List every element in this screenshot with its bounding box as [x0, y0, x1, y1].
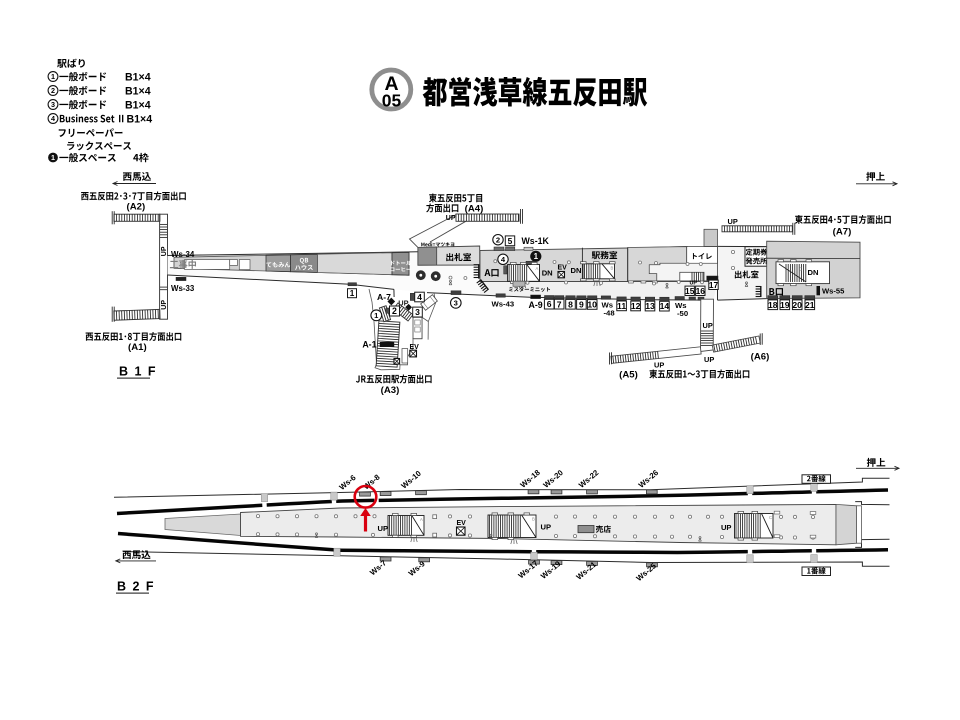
- svg-text:5: 5: [508, 236, 513, 246]
- svg-text:1: 1: [534, 252, 539, 261]
- svg-text:UP: UP: [721, 523, 732, 532]
- svg-text:1: 1: [51, 72, 55, 81]
- svg-text:B1×4: B1×4: [125, 71, 151, 83]
- svg-text:17: 17: [709, 280, 719, 290]
- svg-text:16: 16: [696, 286, 706, 296]
- svg-text:(A6): (A6): [751, 352, 770, 363]
- svg-text:UP: UP: [541, 523, 552, 532]
- svg-text:15: 15: [685, 286, 695, 296]
- svg-text:-48: -48: [604, 308, 616, 317]
- svg-text:(A5): (A5): [619, 370, 638, 381]
- svg-text:(A7): (A7): [833, 227, 852, 238]
- svg-text:05: 05: [382, 91, 402, 111]
- svg-text:19: 19: [780, 300, 790, 310]
- svg-text:3: 3: [415, 307, 420, 317]
- svg-text:10: 10: [587, 300, 597, 310]
- svg-text:A-9: A-9: [529, 300, 543, 310]
- svg-text:3: 3: [454, 299, 458, 308]
- svg-text:UP: UP: [703, 321, 713, 330]
- svg-text:2: 2: [392, 306, 397, 316]
- svg-text:1: 1: [350, 289, 355, 298]
- svg-text:UP: UP: [446, 215, 456, 222]
- svg-text:C: C: [769, 515, 772, 520]
- svg-text:2: 2: [51, 86, 55, 95]
- svg-text:-50: -50: [677, 309, 688, 318]
- svg-text:UP: UP: [161, 300, 168, 310]
- svg-text:EV: EV: [558, 265, 568, 272]
- svg-text:A-1: A-1: [362, 339, 376, 349]
- svg-text:B 2 F: B 2 F: [117, 580, 155, 594]
- svg-text:EV: EV: [457, 520, 467, 527]
- svg-text:UP: UP: [161, 246, 168, 256]
- svg-text:2: 2: [496, 235, 500, 244]
- svg-text:12: 12: [631, 301, 641, 311]
- svg-text:UP: UP: [654, 361, 664, 370]
- svg-text:21: 21: [805, 300, 815, 310]
- svg-text:(A4): (A4): [465, 204, 484, 215]
- svg-text:1: 1: [51, 153, 55, 162]
- svg-text:14: 14: [660, 301, 670, 311]
- svg-text:C: C: [799, 267, 802, 272]
- svg-text:A: A: [536, 266, 539, 271]
- svg-text:DN: DN: [808, 268, 819, 277]
- svg-text:Ws-33: Ws-33: [171, 284, 195, 293]
- svg-text:3: 3: [51, 100, 55, 109]
- svg-text:13: 13: [645, 301, 655, 311]
- svg-text:(A2): (A2): [127, 202, 146, 213]
- svg-text:20: 20: [792, 300, 802, 310]
- svg-text:B 1 F: B 1 F: [119, 365, 157, 379]
- svg-text:B: B: [532, 517, 535, 522]
- svg-text:4: 4: [51, 114, 55, 123]
- svg-text:(A1): (A1): [128, 342, 147, 353]
- svg-text:8: 8: [568, 299, 573, 309]
- svg-text:B1×4: B1×4: [127, 113, 153, 125]
- svg-text:11: 11: [617, 301, 626, 311]
- svg-text:6: 6: [547, 299, 552, 309]
- svg-text:A: A: [420, 517, 423, 522]
- svg-text:UP: UP: [728, 217, 738, 226]
- svg-text:DN: DN: [571, 266, 582, 275]
- svg-text:B1×4: B1×4: [125, 85, 151, 97]
- svg-text:B: B: [611, 265, 614, 270]
- svg-text:9: 9: [579, 300, 584, 310]
- svg-text:18: 18: [768, 300, 778, 310]
- svg-text:Ws-55: Ws-55: [822, 286, 845, 295]
- svg-text:(A3): (A3): [381, 385, 400, 396]
- svg-text:Ws-1K: Ws-1K: [522, 236, 550, 246]
- svg-text:7: 7: [557, 299, 562, 309]
- svg-text:DN: DN: [542, 269, 553, 278]
- svg-text:UP: UP: [378, 524, 389, 533]
- svg-text:B1×4: B1×4: [125, 99, 151, 111]
- svg-text:Ws-34: Ws-34: [171, 250, 195, 259]
- svg-text:Ws-43: Ws-43: [492, 299, 515, 308]
- svg-text:4: 4: [417, 292, 422, 302]
- svg-text:UP: UP: [704, 355, 714, 364]
